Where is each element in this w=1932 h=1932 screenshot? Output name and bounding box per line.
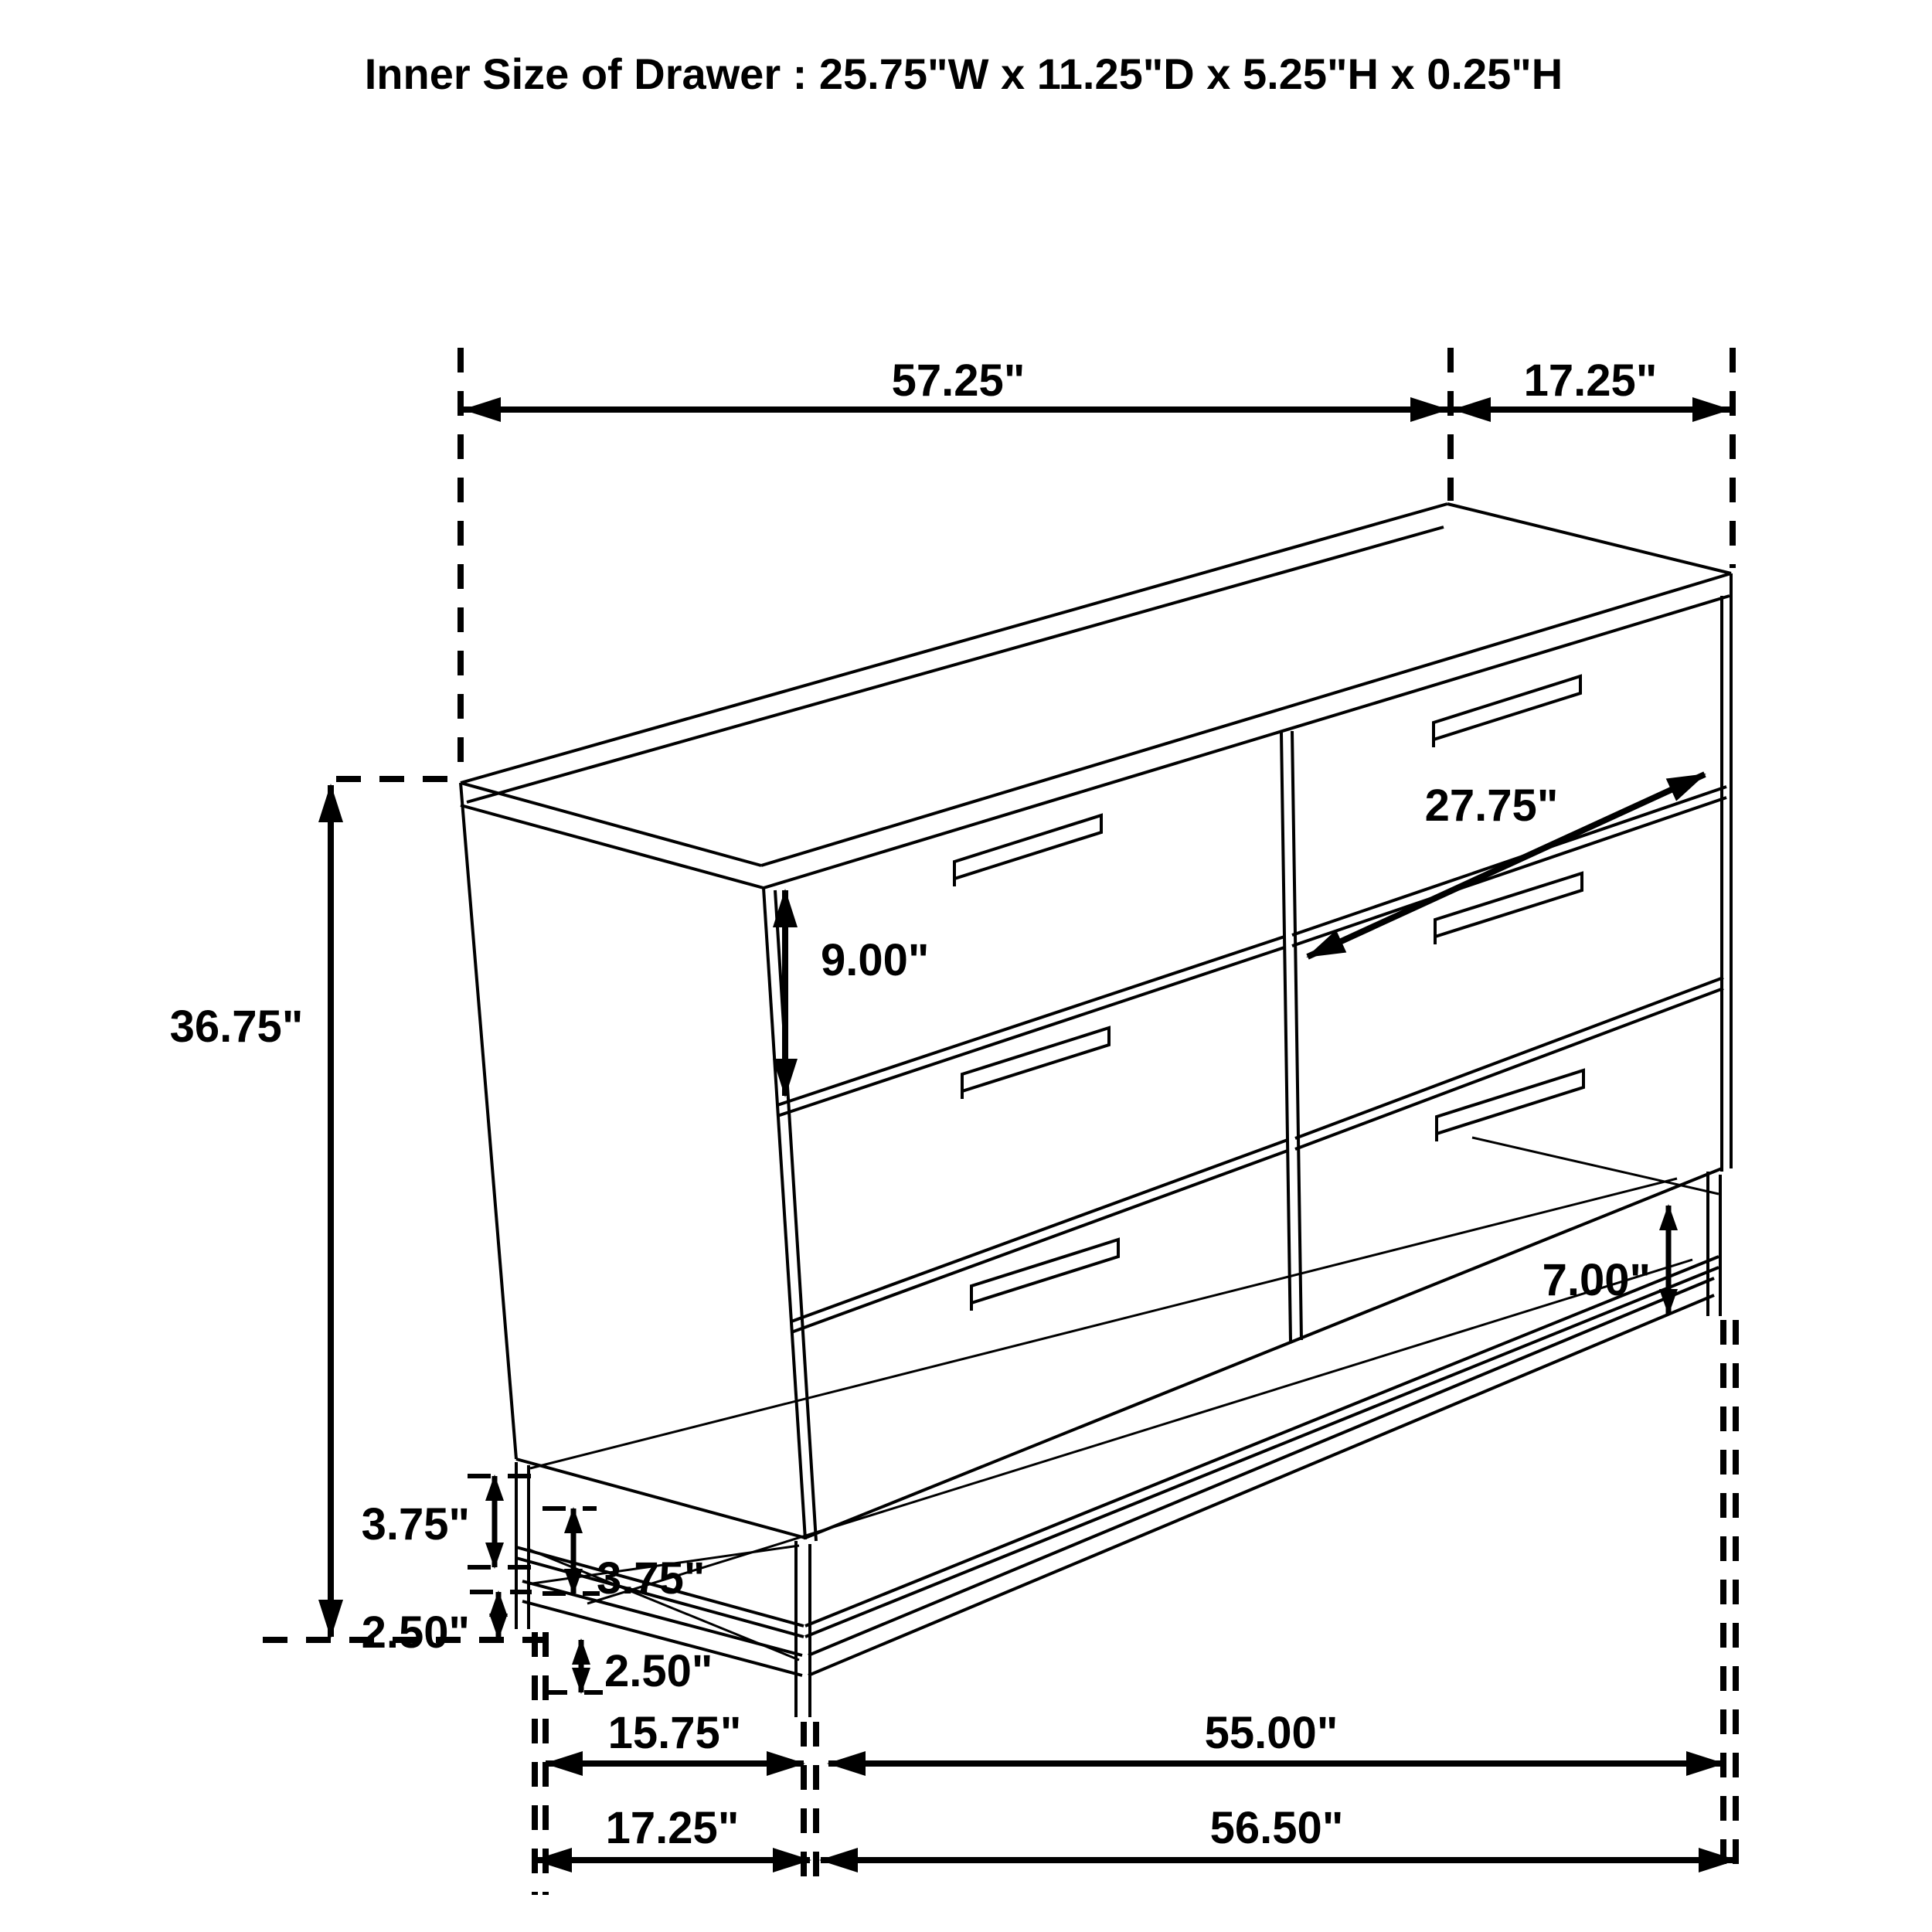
dim-frame-rail-front-label: 3.75" (597, 1553, 705, 1604)
dresser-dimension-diagram: Inner Size of Drawer : 25.75"W x 11.25"D… (0, 0, 1932, 1932)
dim-top-drawer-height-label: 9.00" (821, 935, 929, 985)
dim-drawer-diagonal-label: 27.75" (1425, 781, 1559, 831)
dim-leg-frame-height-label: 7.00" (1543, 1255, 1651, 1305)
dim-base-width-inner-label: 55.00" (1205, 1708, 1338, 1758)
dim-base-depth-inner-label: 15.75" (608, 1708, 742, 1758)
canvas-background (0, 0, 1932, 1932)
dim-frame-rail-side-label: 3.75" (362, 1499, 470, 1549)
dim-base-depth-outer-label: 17.25" (606, 1803, 740, 1853)
dim-overall-height-label: 36.75" (170, 1002, 304, 1052)
dim-top-width-label: 57.25" (892, 355, 1026, 406)
page-title: Inner Size of Drawer : 25.75"W x 11.25"D… (365, 49, 1563, 98)
dim-top-depth-label: 17.25" (1524, 355, 1658, 406)
dim-leg-clearance-front-label: 2.50" (604, 1646, 713, 1696)
dim-leg-clearance-side-label: 2.50" (362, 1607, 470, 1658)
dim-base-width-outer-label: 56.50" (1210, 1803, 1344, 1853)
